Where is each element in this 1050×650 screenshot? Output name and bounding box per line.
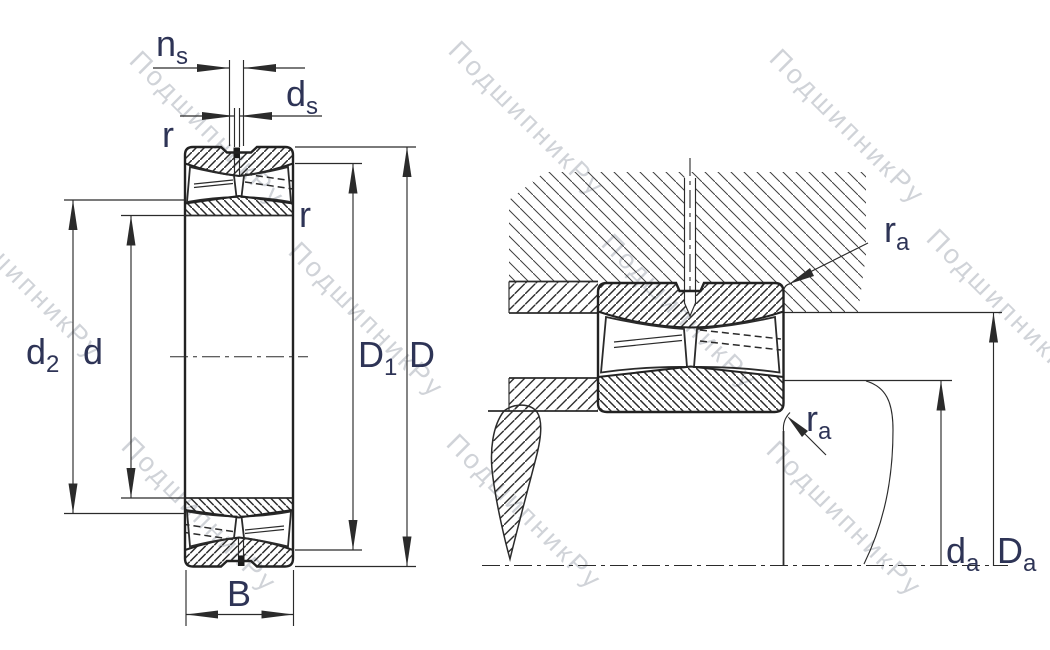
watermark: ПодшипникРу xyxy=(761,435,929,603)
cage-line xyxy=(614,335,682,342)
label-ns: ns xyxy=(156,23,188,70)
bearing-dimension-drawing: ПодшипникРу ПодшипникРу ПодшипникРу Подш… xyxy=(0,0,1050,650)
label-da: da xyxy=(946,530,980,577)
label-ds: ds xyxy=(286,73,318,120)
label-d: d xyxy=(83,331,103,372)
watermark-layer: ПодшипникРу ПодшипникРу ПодшипникРу Подш… xyxy=(0,35,1050,603)
label-ra-housing: ra xyxy=(884,209,910,256)
label-D: D xyxy=(409,334,435,375)
watermark: ПодшипникРу xyxy=(283,236,451,404)
housing-abutment-ring-section xyxy=(509,282,598,314)
shaft-fillet xyxy=(783,413,790,432)
label-r-inner: r xyxy=(299,194,311,235)
bearing-dimension-drawing-page: ПодшипникРу ПодшипникРу ПодшипникРу Подш… xyxy=(0,0,1050,650)
cage-line xyxy=(194,180,233,184)
mounted-bearing-section xyxy=(598,283,784,412)
cage-line xyxy=(194,184,233,188)
label-ra-shaft: ra xyxy=(806,398,832,445)
label-B: B xyxy=(227,573,251,614)
mounted-bearing-view: ra ra da Da xyxy=(482,158,1037,577)
label-d2: d2 xyxy=(26,331,59,378)
label-Da: Da xyxy=(997,530,1037,577)
label-r-outer: r xyxy=(162,114,174,155)
cage-line xyxy=(614,341,682,348)
watermark: ПодшипникРу xyxy=(921,223,1050,391)
